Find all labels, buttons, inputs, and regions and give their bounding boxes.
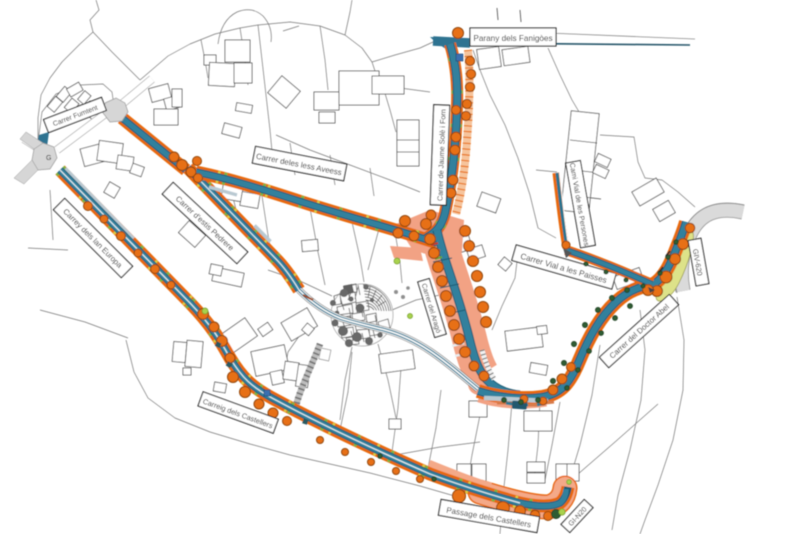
svg-text:Carrer del Doctor Abel: Carrer del Doctor Abel xyxy=(608,302,672,360)
svg-text:G: G xyxy=(46,155,51,162)
svg-text:Parany dels Fanigòes: Parany dels Fanigòes xyxy=(473,34,552,43)
svg-text:Carrey dels lan Europa: Carrey dels lan Europa xyxy=(61,207,124,270)
